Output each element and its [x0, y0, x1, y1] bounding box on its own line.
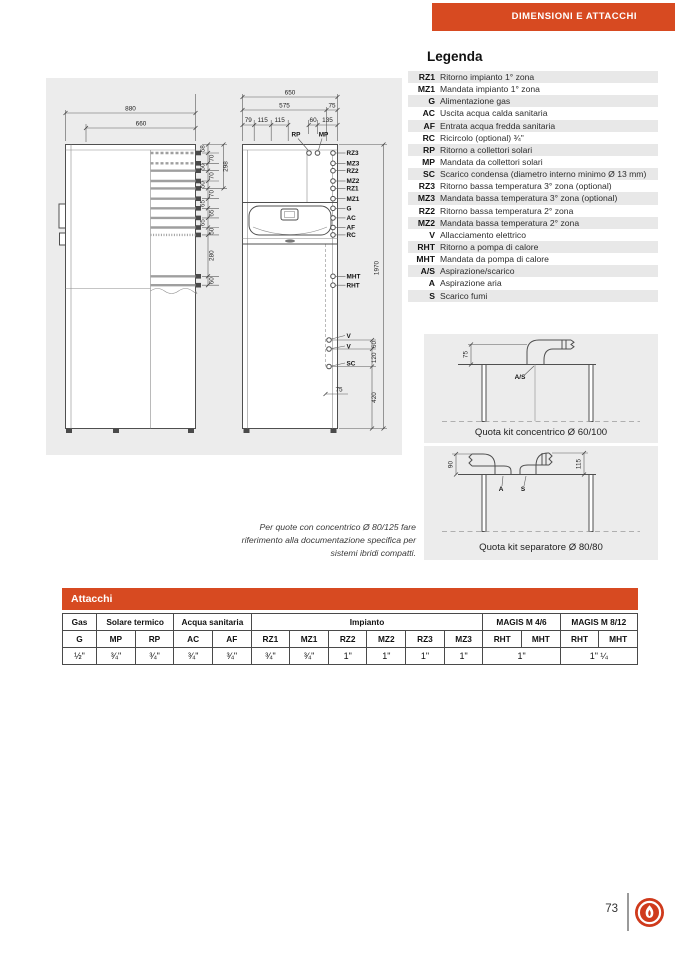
legend-row: RZ2 Ritorno bassa temperatura 2° zona [408, 205, 658, 217]
mp-connection [315, 151, 320, 156]
kit-separatore-panel: A S 90 115 Quota kit separatore Ø 80/80 [424, 446, 658, 560]
dim-chain: 70 [209, 190, 216, 198]
kit-concentrico-drawing: A/S 75 Quota kit concentrico Ø 60/100 [442, 340, 640, 438]
value-cell: 1" [483, 648, 560, 665]
legend-desc: Ritorno bassa temperatura 2° zona [440, 206, 658, 216]
legend-row: RC Ricircolo (optional) ¾" [408, 132, 658, 144]
air-intake-elbow [469, 454, 511, 475]
col-af: AF [212, 631, 251, 648]
col-rz2: RZ2 [328, 631, 367, 648]
dim-chain: 50 [209, 227, 216, 235]
legend-abbr: MP [408, 157, 440, 167]
note-line: riferimento alla documentazione specific… [160, 534, 416, 547]
legend-desc: Alimentazione gas [440, 96, 658, 106]
dim-chain: 60 [371, 341, 378, 349]
legend-abbr: MZ2 [408, 218, 440, 228]
legend-row: MZ2 Mandata bassa temperatura 2° zona [408, 217, 658, 229]
dim-offset: 79 [245, 117, 253, 124]
legend-abbr: AF [408, 121, 440, 131]
pipe-label: MZ1 [347, 196, 360, 203]
legend-desc: Scarico fumi [440, 291, 658, 301]
legend-row: RZ1 Ritorno impianto 1° zona [408, 71, 658, 83]
dim-offset: 115 [275, 117, 286, 124]
legend-abbr: RZ2 [408, 206, 440, 216]
dim-115: 115 [576, 458, 583, 469]
col-mp: MP [97, 631, 136, 648]
legend-desc: Ricircolo (optional) ¾" [440, 133, 658, 143]
col-rht-812: RHT [560, 631, 599, 648]
legend-desc: Uscita acqua calda sanitaria [440, 108, 658, 118]
pipe-label: RC [347, 232, 357, 239]
legend-row: MHT Mandata da pompa di calore [408, 253, 658, 265]
pipe-label: RZ2 [347, 168, 360, 175]
group-gas: Gas [63, 614, 97, 631]
legend-row: AF Entrata acqua fredda sanitaria [408, 120, 658, 132]
group-sanitaria: Acqua sanitaria [174, 614, 251, 631]
pipe-label: V [347, 344, 352, 351]
dim-880: 880 [125, 106, 136, 113]
col-rht-46: RHT [483, 631, 522, 648]
brand-badge [285, 239, 295, 242]
legend-desc: Allacciamento elettrico [440, 230, 658, 240]
pipe-label: MZ3 [347, 161, 360, 168]
legend-abbr: G [408, 96, 440, 106]
note-line: sistemi ibridi compatti. [160, 547, 416, 560]
dim-1970: 1970 [374, 260, 381, 275]
group-header-row: Gas Solare termico Acqua sanitaria Impia… [63, 614, 638, 631]
legend-abbr: RC [408, 133, 440, 143]
group-magis-46: MAGIS M 4/6 [483, 614, 560, 631]
legend-row: MP Mandata da collettori solari [408, 156, 658, 168]
legend-row: SC Scarico condensa (diametro interno mi… [408, 168, 658, 180]
dim-298: 298 [223, 161, 230, 172]
label-mp: MP [319, 132, 329, 139]
value-cell: ¾" [212, 648, 251, 665]
col-mz1: MZ1 [290, 631, 329, 648]
dim-650: 650 [285, 90, 296, 97]
legend-row: A/S Aspirazione/scarico [408, 265, 658, 277]
legend-row: RHT Ritorno a pompa di calore [408, 241, 658, 253]
value-cell: ¾" [97, 648, 136, 665]
legend-desc: Mandata bassa temperatura 3° zona (optio… [440, 193, 658, 203]
col-mht-812: MHT [599, 631, 638, 648]
attacchi-table: Gas Solare termico Acqua sanitaria Impia… [62, 613, 638, 665]
section-banner: DIMENSIONI E ATTACCHI [432, 3, 675, 31]
pipe-label: MHT [347, 274, 361, 281]
col-rz1: RZ1 [251, 631, 290, 648]
group-impianto: Impianto [251, 614, 483, 631]
group-solare: Solare termico [97, 614, 174, 631]
col-rz3: RZ3 [406, 631, 445, 648]
legend-abbr: RHT [408, 242, 440, 252]
dim-chain: 120 [371, 352, 378, 363]
attacchi-title: Attacchi [62, 588, 638, 610]
values-row: ½" ¾" ¾" ¾" ¾" ¾" ¾" 1" 1" 1" 1" 1" 1" ¼ [63, 648, 638, 665]
value-cell: 1" [328, 648, 367, 665]
value-cell: ¾" [290, 648, 329, 665]
page-number: 73 [594, 903, 618, 915]
legend-abbr: V [408, 230, 440, 240]
dim-chain: 65 [209, 209, 216, 217]
dim-offset: 60 [310, 117, 318, 124]
legend-desc: Mandata bassa temperatura 2° zona [440, 218, 658, 228]
legend-abbr: MHT [408, 254, 440, 264]
dim-chain: 50 [200, 163, 207, 171]
pipe-label: RZ3 [347, 150, 360, 157]
dim-58: 58 [200, 145, 207, 153]
legend-desc: Aspirazione/scarico [440, 266, 658, 276]
kit-concentrico-title: Quota kit concentrico Ø 60/100 [475, 427, 607, 438]
dim-75-kit: 75 [463, 351, 470, 359]
side-view-drawing: 880 660 [59, 94, 230, 433]
subheader-row: G MP RP AC AF RZ1 MZ1 RZ2 MZ2 RZ3 MZ3 RH… [63, 631, 638, 648]
pipe-label: G [347, 206, 352, 213]
dim-chain: 50 [200, 181, 207, 189]
legend-desc: Entrata acqua fredda sanitaria [440, 121, 658, 131]
legend-row: RZ3 Ritorno bassa temperatura 3° zona (o… [408, 180, 658, 192]
dim-offset: 135 [322, 117, 333, 124]
legend-desc: Mandata impianto 1° zona [440, 84, 658, 94]
legend-row: MZ1 Mandata impianto 1° zona [408, 83, 658, 95]
legend-desc: Ritorno a pompa di calore [440, 242, 658, 252]
value-cell: 1" [367, 648, 406, 665]
col-mht-46: MHT [522, 631, 561, 648]
legend-row: A Aspirazione aria [408, 277, 658, 289]
legend-abbr: MZ1 [408, 84, 440, 94]
legend-desc: Mandata da collettori solari [440, 157, 658, 167]
legend-abbr: A/S [408, 266, 440, 276]
kit-separatore-title: Quota kit separatore Ø 80/80 [479, 542, 603, 553]
legend-desc: Ritorno a collettori solari [440, 145, 658, 155]
legend-abbr: RP [408, 145, 440, 155]
legend-desc: Ritorno impianto 1° zona [440, 72, 658, 82]
legend-abbr: RZ1 [408, 72, 440, 82]
legend-abbr: RZ3 [408, 181, 440, 191]
col-mz2: MZ2 [367, 631, 406, 648]
legend-title: Legenda [427, 49, 658, 64]
legend-abbr: AC [408, 108, 440, 118]
pipe-label: RHT [347, 282, 360, 289]
dim-75-bottom: 75 [335, 387, 343, 394]
concentric-flue-elbow [527, 340, 574, 365]
dim-chain: 65 [200, 200, 207, 208]
legend-abbr: A [408, 278, 440, 288]
flue-exhaust-elbow [520, 453, 552, 475]
value-cell: 1" [444, 648, 483, 665]
value-cell: 1" [406, 648, 445, 665]
legend-abbr: MZ3 [408, 193, 440, 203]
footer-divider [627, 893, 629, 931]
concentric-note: Per quote con concentrico Ø 80/125 fare … [160, 521, 416, 560]
dimensions-drawing-panel: 880 660 [46, 78, 402, 455]
value-cell: ¾" [135, 648, 174, 665]
pipe-label: V [347, 333, 352, 340]
value-cell: ½" [63, 648, 97, 665]
value-cell: ¾" [174, 648, 213, 665]
col-ac: AC [174, 631, 213, 648]
legend-row: G Alimentazione gas [408, 95, 658, 107]
front-view-drawing: 650 575 75 [241, 90, 388, 434]
door-handle [59, 204, 66, 228]
legend-row: RP Ritorno a collettori solari [408, 144, 658, 156]
dim-chain: 70 [209, 172, 216, 180]
value-cell: ¾" [251, 648, 290, 665]
legend-desc: Aspirazione aria [440, 278, 658, 288]
note-line: Per quote con concentrico Ø 80/125 fare [160, 521, 416, 534]
dim-660: 660 [136, 121, 147, 128]
legend-desc: Ritorno bassa temperatura 3° zona (optio… [440, 181, 658, 191]
dim-75-top: 75 [328, 103, 336, 110]
pipe-label: RZ1 [347, 186, 360, 193]
kit-separatore-drawing: A S 90 115 Quota kit separatore Ø 80/80 [442, 451, 640, 553]
label-a: A [499, 486, 504, 493]
pipe-label: AC [347, 215, 357, 222]
dim-90: 90 [448, 461, 455, 469]
legend-desc: Scarico condensa (diametro interno minim… [440, 169, 658, 179]
col-g: G [63, 631, 97, 648]
dim-chain: 70 [209, 154, 216, 162]
dim-chain: 280 [209, 250, 216, 261]
kit-concentrico-panel: A/S 75 Quota kit concentrico Ø 60/100 [424, 334, 658, 443]
label-rp: RP [292, 132, 302, 139]
dim-chain: 65 [200, 219, 207, 227]
legend-abbr: S [408, 291, 440, 301]
label-s: S [521, 486, 526, 493]
legend-row: MZ3 Mandata bassa temperatura 3° zona (o… [408, 192, 658, 204]
immergas-flame-logo [633, 896, 666, 929]
col-mz3: MZ3 [444, 631, 483, 648]
dim-575: 575 [279, 103, 290, 110]
legend: Legenda RZ1 Ritorno impianto 1° zona MZ1… [408, 49, 658, 302]
dim-chain: 420 [371, 392, 378, 403]
dim-chain: 60 [209, 277, 216, 285]
legend-row: S Scarico fumi [408, 290, 658, 302]
legend-desc: Mandata da pompa di calore [440, 254, 658, 264]
legend-row: V Allacciamento elettrico [408, 229, 658, 241]
manual-page: DIMENSIONI E ATTACCHI Legenda RZ1 Ritorn… [0, 0, 678, 959]
value-cell: 1" ¼ [560, 648, 637, 665]
attacchi-section: Attacchi Gas Solare termico Acqua sanita… [62, 588, 638, 665]
legend-rows: RZ1 Ritorno impianto 1° zona MZ1 Mandata… [408, 71, 658, 302]
group-magis-812: MAGIS M 8/12 [560, 614, 637, 631]
col-rp: RP [135, 631, 174, 648]
rp-connection [307, 151, 312, 156]
dim-offset: 115 [258, 117, 269, 124]
pipe-label: MZ2 [347, 178, 360, 185]
pipe-label: AF [347, 225, 356, 232]
legend-row: AC Uscita acqua calda sanitaria [408, 107, 658, 119]
legend-abbr: SC [408, 169, 440, 179]
